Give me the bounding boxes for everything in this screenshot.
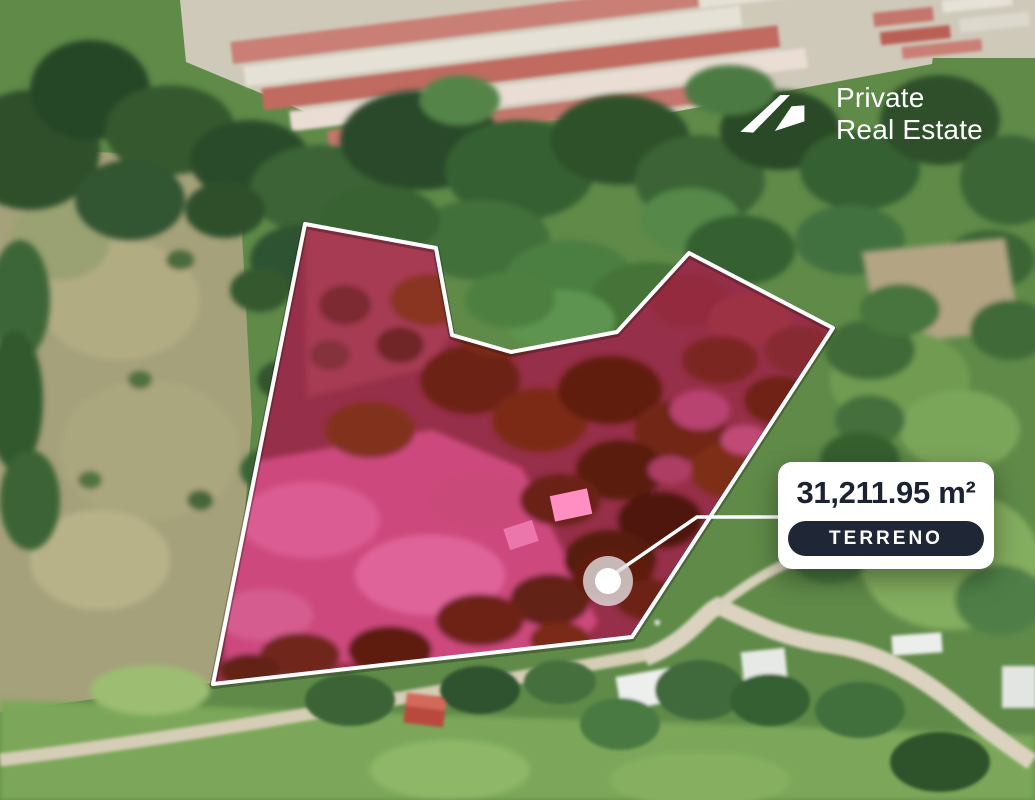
brand-name-line2: Real Estate bbox=[836, 114, 983, 146]
brand-logo: Private Real Estate bbox=[738, 82, 983, 146]
house-roof-icon bbox=[738, 87, 818, 143]
area-value: 31,211.95 m² bbox=[796, 477, 975, 509]
area-card: 31,211.95 m² TERRENO bbox=[778, 462, 994, 569]
brand-name-line1: Private bbox=[836, 82, 983, 114]
brand-name: Private Real Estate bbox=[836, 82, 983, 146]
terreno-badge: TERRENO bbox=[788, 521, 984, 556]
location-marker-icon bbox=[583, 556, 633, 606]
terreno-badge-label: TERRENO bbox=[829, 528, 943, 550]
real-estate-listing-image: Private Real Estate 31,211.95 m² TERRENO bbox=[0, 0, 1035, 800]
